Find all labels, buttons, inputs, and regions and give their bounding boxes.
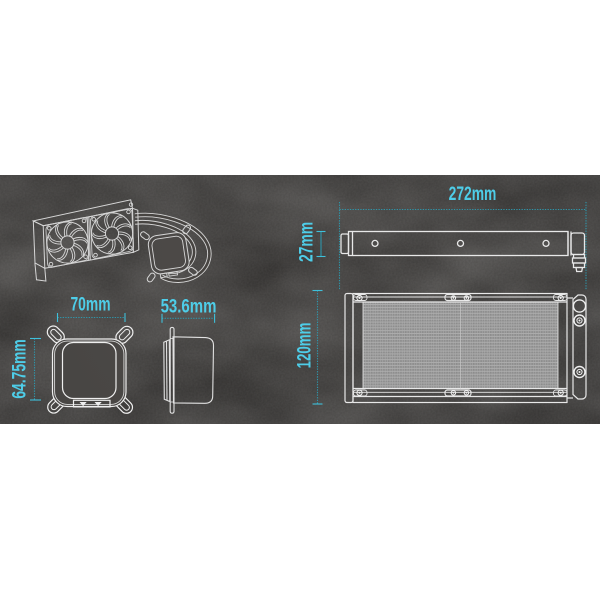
svg-text:70mm: 70mm bbox=[70, 293, 110, 315]
svg-text:120mm: 120mm bbox=[294, 323, 315, 369]
svg-text:272mm: 272mm bbox=[449, 183, 497, 205]
svg-text:27mm: 27mm bbox=[295, 222, 317, 262]
svg-text:53.6mm: 53.6mm bbox=[161, 296, 217, 317]
svg-text:64.75mm: 64.75mm bbox=[8, 339, 30, 398]
